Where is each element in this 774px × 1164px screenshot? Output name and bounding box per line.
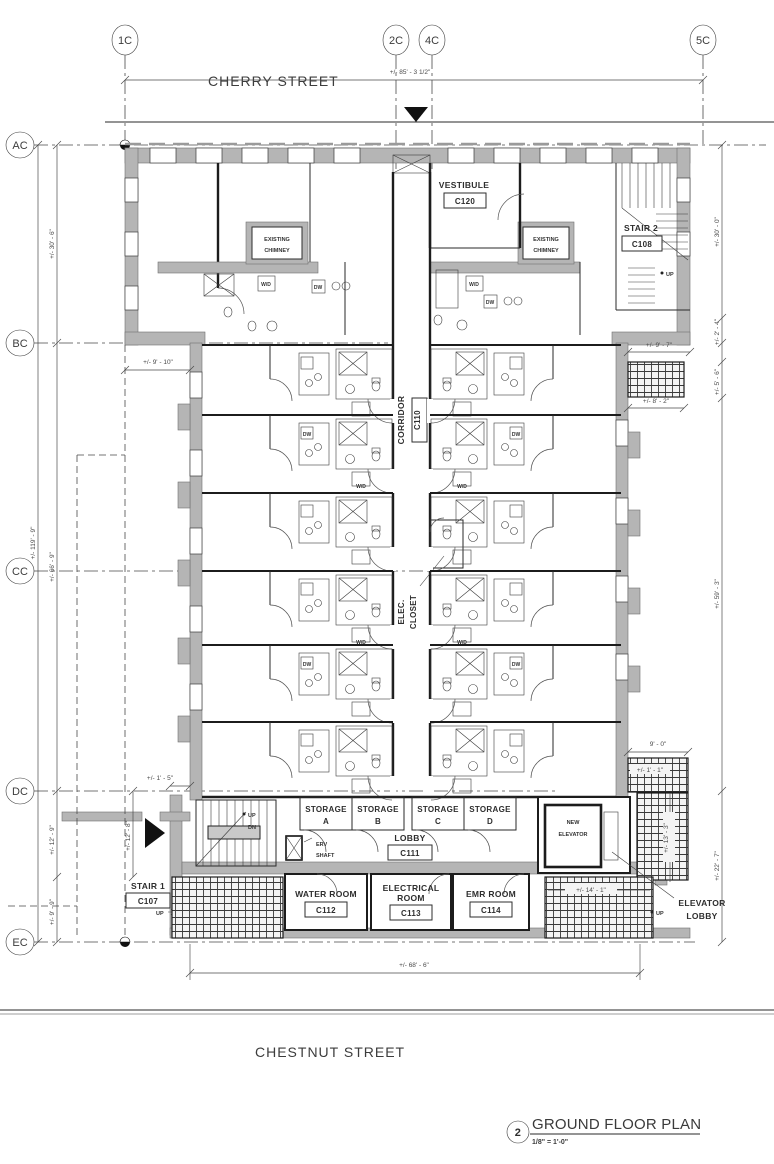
dim-left-lower2: +/- 9' - 9" [49, 898, 56, 925]
title-text: GROUND FLOOR PLAN [532, 1116, 701, 1133]
stair2-up-label: UP [666, 272, 674, 278]
room-number-stair1: C107 [138, 897, 159, 906]
room-number-lobby: C111 [400, 849, 420, 858]
dim-entry-offset: +/- 1' - 5" [147, 775, 174, 782]
room-label-vestibule: VESTIBULE [439, 180, 489, 190]
room-label-water: WATER ROOM [295, 889, 357, 899]
grid-bubble-dc: DC [12, 786, 28, 798]
dim-right-upper: +/- 30' - 0" [714, 216, 721, 246]
fixture-wd-2: W/D [469, 282, 479, 288]
room-letter-storage-d: D [487, 817, 493, 826]
room-label-stair2: STAIR 2 [624, 223, 658, 233]
room-label-elevator-lobby-2: LOBBY [686, 911, 717, 921]
room-number-vestibule: C120 [455, 197, 476, 206]
fixture-wd-4: W/D [457, 484, 467, 490]
dim-vault-width: +/- 14' - 1" [576, 887, 606, 894]
grid-bubble-5c: 5C [696, 35, 710, 47]
room-label-storage-d: STORAGE [469, 805, 511, 814]
fixture-dw-1: DW [314, 285, 323, 291]
grid-bubble-bc: BC [12, 338, 27, 350]
property-dashed-lines [8, 345, 125, 938]
room-label-new-elevator-1: NEW [567, 820, 581, 826]
fixture-wd-5: W/D [356, 640, 366, 646]
grid-bubble-ac: AC [12, 140, 27, 152]
drawing-sheet: CHERRY STREET CHESTNUT STREET 1C 2C 4C 5… [0, 0, 774, 1164]
fixture-wd-6: W/D [457, 640, 467, 646]
room-label-elec-closet-2: CLOSET [409, 595, 418, 629]
dim-elev-area-step: +/- 1' - 1" [637, 767, 664, 774]
dim-left-mid: +/- 66' - 9" [49, 551, 56, 581]
grid-bubble-4c: 4C [425, 35, 439, 47]
room-letter-storage-b: B [375, 817, 381, 826]
street-label-chestnut: CHESTNUT STREET [255, 1044, 405, 1060]
fixture-dw-5: DW [303, 662, 312, 668]
room-label-emr: EMR ROOM [466, 889, 516, 899]
room-new-elevator: NEW ELEVATOR [538, 797, 630, 873]
fixture-dw-3: DW [303, 432, 312, 438]
room-label-storage-b: STORAGE [357, 805, 399, 814]
room-label-elec-closet-1: ELEC. [397, 599, 406, 624]
stair1-dn-label: DN [248, 825, 256, 831]
apartment-units-east [427, 345, 621, 800]
room-label-electrical-1: ELECTRICAL [383, 883, 440, 893]
room-number-water: C112 [316, 906, 336, 915]
dim-right-mid: +/- 59' - 3" [714, 578, 721, 608]
fixture-wd-3: W/D [356, 484, 366, 490]
dim-right-step: +/- 2' - 4" [714, 318, 721, 345]
fixture-dw-4: DW [512, 432, 521, 438]
room-label-chimney-left-2: CHIMNEY [264, 248, 290, 254]
title-number: 2 [515, 1127, 521, 1139]
upper-floor-interior: EXISTING CHIMNEY EXISTING CHIMNEY W/D DW… [158, 163, 580, 335]
room-letter-storage-a: A [323, 817, 329, 826]
dim-bottom-width: +/- 68' - 6" [399, 962, 429, 969]
street-label-cherry: CHERRY STREET [208, 73, 339, 89]
elevator-up-label: UP [656, 911, 664, 917]
dim-elev-lobby-height: +/- 13' - 3" [663, 822, 670, 852]
room-label-electrical-2: ROOM [397, 893, 425, 903]
grid-bubble-1c: 1C [118, 35, 132, 47]
room-number-emr: C114 [481, 906, 501, 915]
fixture-dw-2: DW [486, 300, 495, 306]
dim-right-offset: +/- 9' - 7" [646, 342, 673, 349]
room-label-chimney-left-1: EXISTING [264, 237, 290, 243]
room-label-chimney-right-1: EXISTING [533, 237, 559, 243]
bottom-rooms: WATER ROOM C112 ELECTRICAL ROOM C113 EMR… [285, 874, 529, 930]
title-scale: 1/8" = 1'-0" [532, 1139, 568, 1146]
room-vestibule: VESTIBULE C120 [393, 155, 524, 248]
room-number-stair2: C108 [632, 240, 653, 249]
stair1-up-label: UP [248, 813, 256, 819]
grid-bubble-2c: 2C [389, 35, 403, 47]
dim-right-lower: +/- 22' - 7" [714, 850, 721, 880]
room-label-chimney-right-2: CHIMNEY [533, 248, 559, 254]
fixture-dw-6: DW [512, 662, 521, 668]
drawing-title-block: 2 GROUND FLOOR PLAN 1/8" = 1'-0" [507, 1116, 701, 1146]
room-label-lobby: LOBBY [394, 833, 425, 843]
entry-arrow-left [145, 818, 165, 848]
entry-arrow-top [404, 107, 428, 122]
dim-left-lower-inner: +/- 12' - 8" [125, 820, 132, 850]
stair1-up2-label: UP [156, 911, 164, 917]
label-erv-1: ERV [316, 842, 328, 848]
dim-elev-area-width: 9' - 0" [650, 741, 667, 748]
floor-plan-svg: CHERRY STREET CHESTNUT STREET 1C 2C 4C 5… [0, 0, 774, 1164]
grid-bubble-cc: CC [12, 566, 28, 578]
room-label-stair1: STAIR 1 [131, 881, 165, 891]
grid-bubble-ec: EC [12, 937, 27, 949]
room-label-new-elevator-2: ELEVATOR [558, 832, 587, 838]
room-number-corridor: C110 [413, 410, 422, 430]
label-erv-2: SHAFT [316, 853, 335, 859]
dim-west-offset: +/- 9' - 10" [143, 359, 173, 366]
room-label-storage-c: STORAGE [417, 805, 459, 814]
dim-left-lower1: +/- 12' - 9" [49, 824, 56, 854]
dim-areaway-height: +/- 5' - 6" [714, 368, 721, 395]
room-label-corridor: CORRIDOR [396, 396, 406, 445]
room-number-electrical: C113 [401, 909, 421, 918]
dim-left-upper: +/- 30' - 6" [49, 228, 56, 258]
dim-left-total: +/- 119' - 9" [30, 526, 37, 560]
fixture-wd-1: W/D [261, 282, 271, 288]
apartment-units-west [202, 345, 396, 800]
room-label-storage-a: STORAGE [305, 805, 347, 814]
dim-top-width: +/- 85' - 3 1/2" [390, 69, 431, 76]
room-label-elevator-lobby-1: ELEVATOR [678, 898, 725, 908]
room-letter-storage-c: C [435, 817, 441, 826]
dim-areaway-width: +/- 8' - 2" [643, 398, 670, 405]
